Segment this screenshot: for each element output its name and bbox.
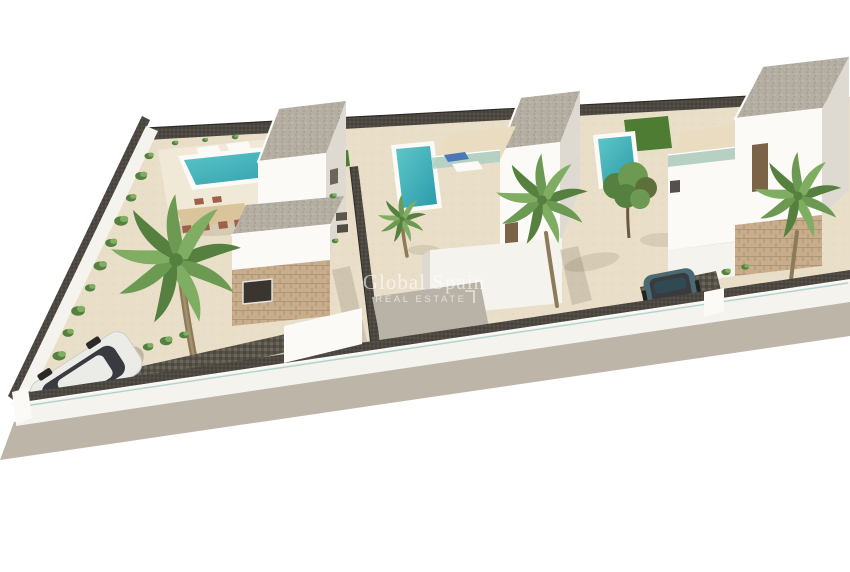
villa-render: Global Spain REAL ESTATE <box>0 0 850 572</box>
villa-3-small-window <box>670 180 680 193</box>
villa-1-front-window <box>243 279 272 304</box>
render-canvas: Global Spain REAL ESTATE <box>0 0 850 572</box>
villa-3-door <box>752 143 768 192</box>
watermark-subtitle: REAL ESTATE <box>375 294 466 305</box>
villa-1-side-window <box>330 168 338 185</box>
villa-1-lower-wing <box>232 196 344 326</box>
villa-2-pool <box>391 141 442 213</box>
front-wall-post-right <box>704 288 724 317</box>
